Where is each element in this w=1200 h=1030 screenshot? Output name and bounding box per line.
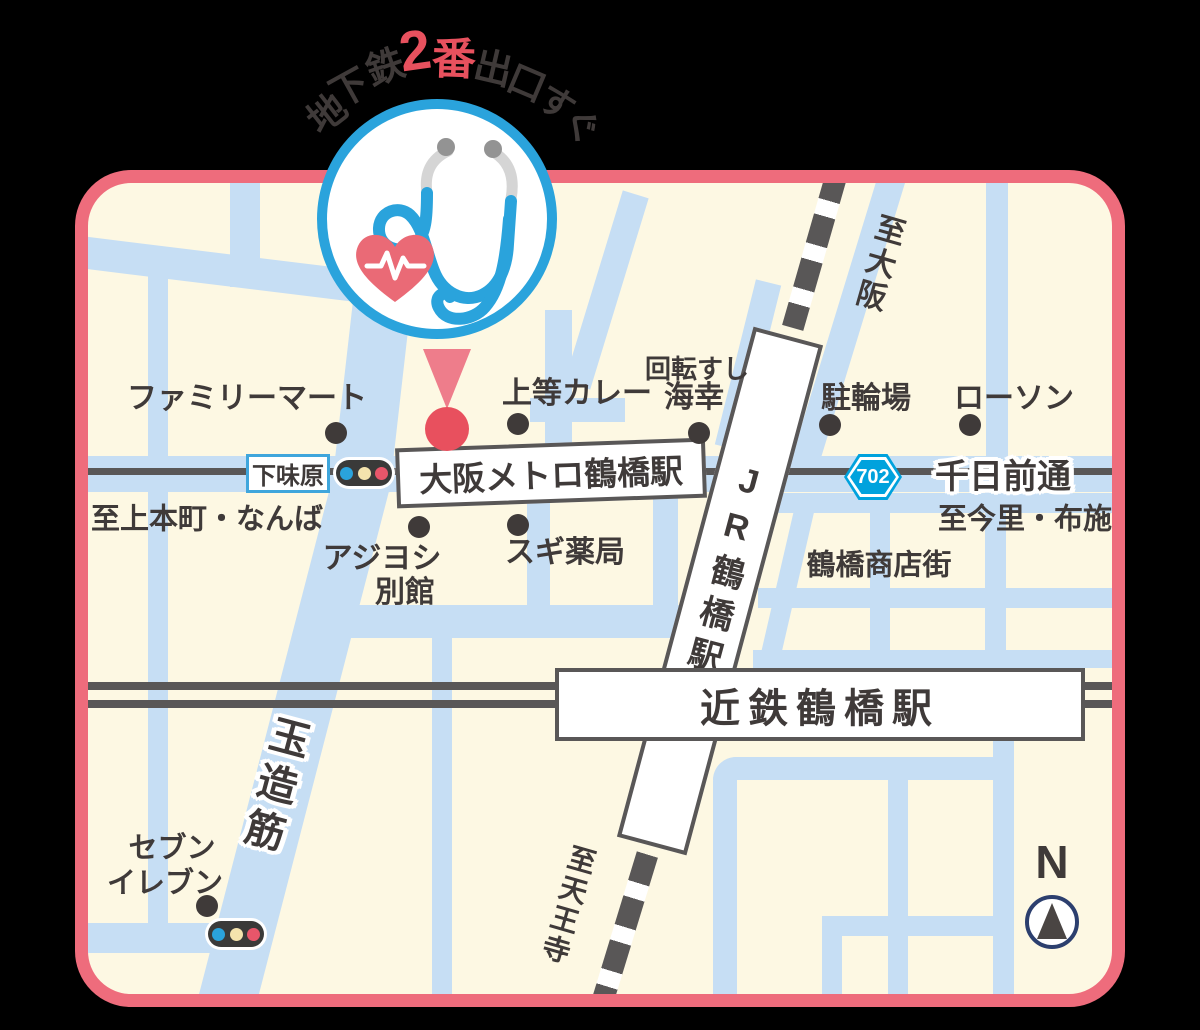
poi-dot-bicycle-parking [819,414,841,436]
label-bekkan: 別館 [375,578,435,608]
poi-dot-sugi [507,514,529,536]
label-joto-curry: 上等カレー [502,379,652,409]
label-familymart: ファミリーマート [127,384,367,414]
jr-rail-south [590,851,658,1007]
signal-blue [340,467,353,480]
label-to-imazato: 至今里・布施 [938,506,1112,535]
road [753,650,1112,668]
label-kaiten-sushi: 回転すし [645,356,749,382]
clinic-access-map: JR鶴橋駅 近鉄鶴橋駅 大阪メトロ鶴橋駅 下味原 [0,0,1200,1030]
road [564,190,648,389]
label-sugi-pharmacy: スギ薬局 [505,538,625,568]
road [432,620,452,994]
map-canvas: JR鶴橋駅 近鉄鶴橋駅 大阪メトロ鶴橋駅 下味原 [88,183,1112,994]
label-ajiyoshi: アジヨシ [323,544,442,574]
label-kaiko: 海幸 [664,383,724,413]
metro-station-label: 大阪メトロ鶴橋駅 [418,444,684,501]
traffic-light-icon [208,921,264,947]
label-bicycle-parking: 駐輪場 [821,384,911,414]
label-shotengai: 鶴橋商店街 [806,552,951,581]
shimoajihara-sign: 下味原 [246,454,330,493]
stethoscope-heart-icon [327,109,547,329]
road [986,170,1008,460]
label-sennichimae: 千日前通 [935,460,1071,494]
road [758,588,1112,608]
signal-yellow [230,928,243,941]
label-lawson: ローソン [954,384,1074,414]
poi-dot-ajiyoshi [408,516,430,538]
poi-dot-familymart [325,422,347,444]
shimoajihara-label: 下味原 [252,456,324,491]
signal-red [247,928,260,941]
arch-char: 番 [431,22,477,87]
label-seven: セブン [128,835,215,864]
poi-dot-lawson [959,414,981,436]
poi-dot-kaiko [688,422,710,444]
signal-yellow [358,467,371,480]
route-number: 702 [856,466,889,489]
road [822,916,1005,936]
map-pin-dot [425,407,469,451]
clinic-logo [317,99,557,339]
signal-blue [212,928,225,941]
road [993,741,1014,1007]
compass-north-label: N [1035,839,1068,885]
road [230,170,260,287]
road [888,772,908,1007]
label-eleven: イレブン [107,870,223,899]
signal-red [375,467,388,480]
compass-icon [1025,895,1079,949]
kintetsu-station-box: 近鉄鶴橋駅 [555,668,1085,741]
label-to-tennoji: 至天王寺 [536,842,597,969]
map-frame: JR鶴橋駅 近鉄鶴橋駅 大阪メトロ鶴橋駅 下味原 [75,170,1125,1007]
label-to-uehommachi: 至上本町・なんば [91,506,323,535]
road [713,757,737,1007]
route-702-badge: 702 [844,454,902,500]
traffic-light-icon [336,460,392,486]
map-pin-icon [423,349,471,409]
kintetsu-station-label: 近鉄鶴橋駅 [700,676,940,734]
compass-needle [1037,903,1067,939]
road [713,757,1005,780]
road [320,605,700,638]
road [822,916,842,1007]
road [653,488,678,610]
poi-dot-joto-curry [507,413,529,435]
